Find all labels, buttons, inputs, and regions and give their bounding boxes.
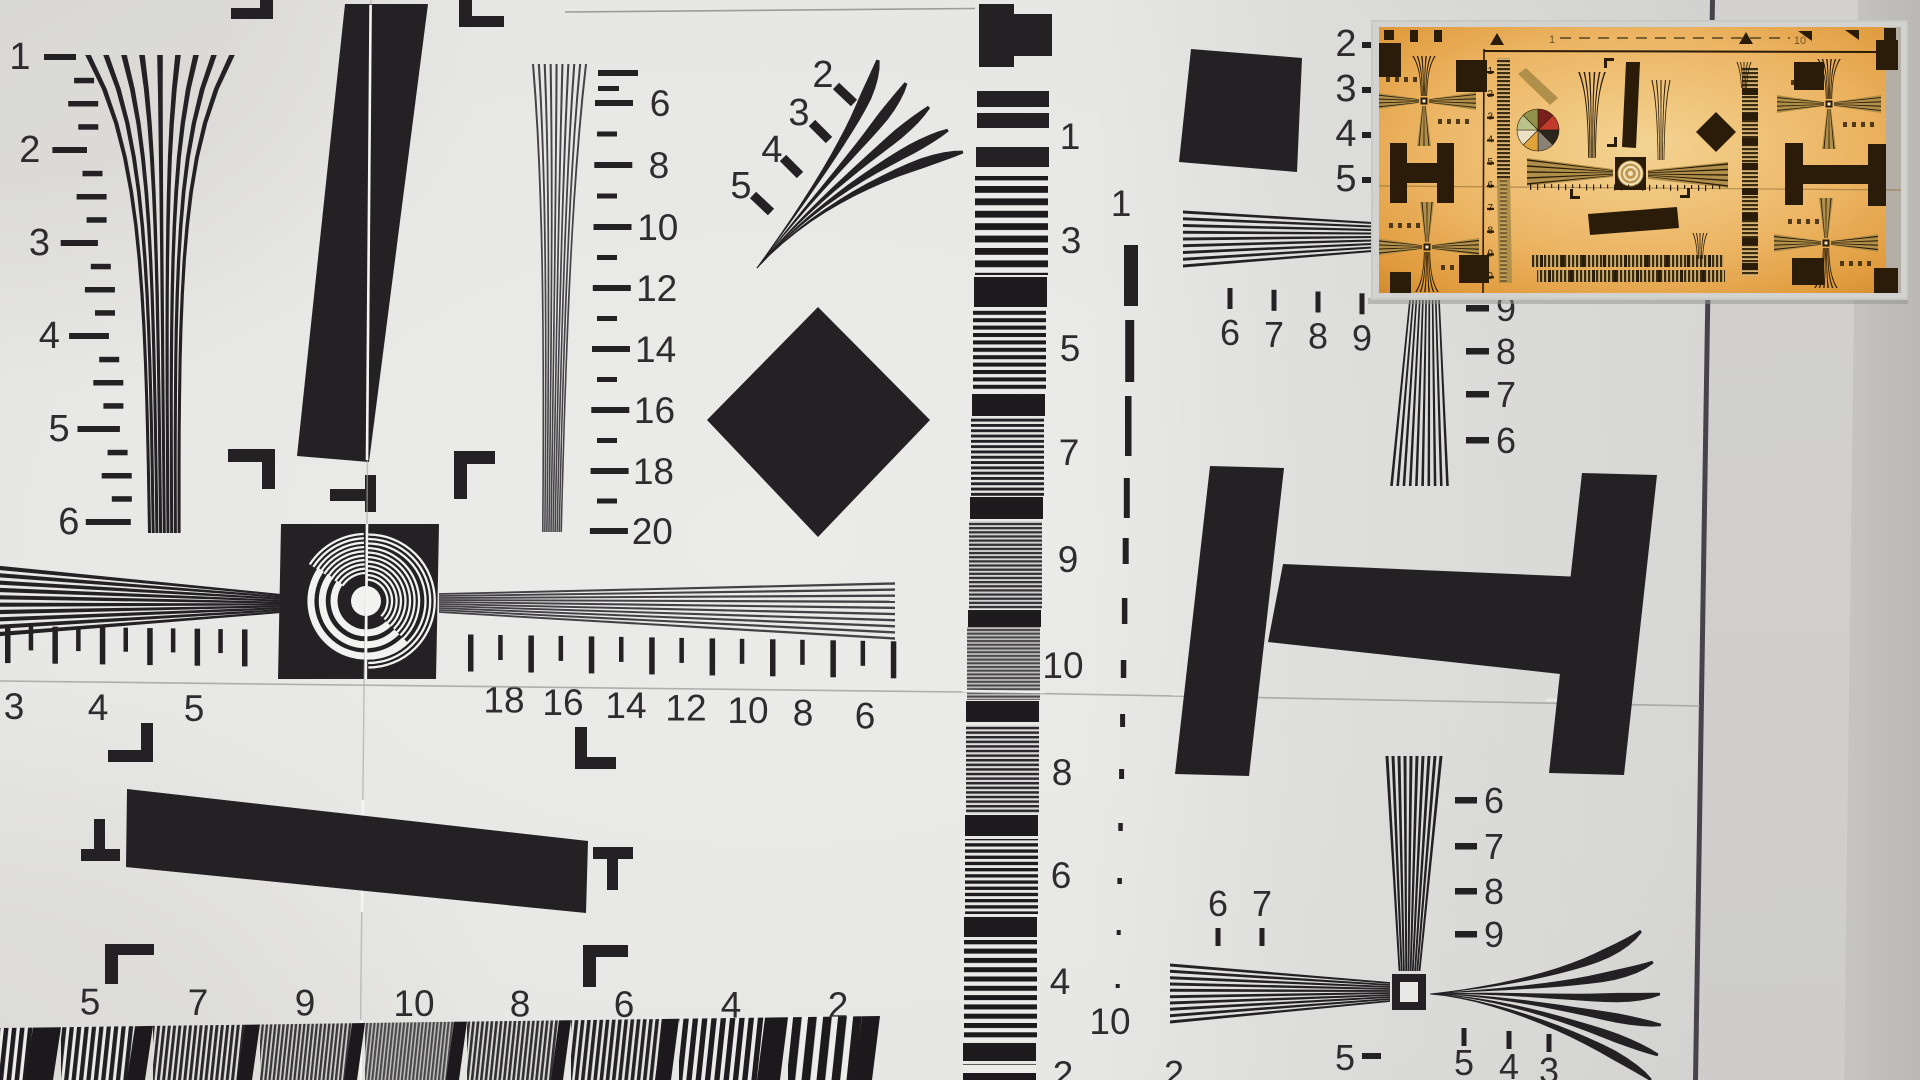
svg-text:5: 5	[1454, 1042, 1474, 1080]
svg-text:3: 3	[1487, 112, 1493, 123]
svg-text:4: 4	[761, 129, 782, 171]
svg-text:7: 7	[1487, 203, 1493, 214]
svg-text:6: 6	[1496, 420, 1516, 461]
svg-text:10: 10	[1042, 645, 1083, 686]
svg-text:16: 16	[634, 390, 675, 431]
svg-text:2: 2	[812, 54, 833, 96]
svg-text:8: 8	[1052, 752, 1073, 793]
svg-text:6: 6	[855, 696, 876, 737]
svg-text:4: 4	[1487, 134, 1493, 145]
svg-text:6: 6	[1051, 855, 1072, 896]
svg-text:18: 18	[633, 451, 674, 492]
svg-text:6: 6	[1220, 312, 1240, 353]
svg-text:1: 1	[1549, 34, 1555, 46]
svg-text:5: 5	[80, 982, 101, 1023]
svg-text:2: 2	[1053, 1054, 1074, 1080]
svg-text:5: 5	[184, 688, 205, 729]
svg-text:3: 3	[788, 92, 809, 134]
svg-text:4: 4	[1499, 1046, 1519, 1080]
svg-text:18: 18	[483, 679, 524, 720]
svg-text:3: 3	[1539, 1050, 1559, 1080]
svg-text:9: 9	[1352, 317, 1372, 358]
svg-text:6: 6	[58, 501, 79, 543]
svg-text:2: 2	[19, 129, 40, 171]
svg-text:4: 4	[88, 687, 109, 728]
svg-text:1: 1	[1487, 66, 1493, 77]
svg-text:4: 4	[1050, 961, 1071, 1002]
svg-text:6: 6	[1208, 883, 1228, 924]
svg-text:2: 2	[1335, 23, 1356, 65]
svg-text:5: 5	[49, 408, 70, 450]
svg-text:6: 6	[650, 83, 671, 124]
svg-text:9: 9	[295, 983, 316, 1024]
svg-text:6: 6	[1484, 780, 1504, 821]
svg-text:3: 3	[4, 686, 25, 727]
svg-text:8: 8	[649, 145, 670, 186]
svg-text:7: 7	[1484, 826, 1504, 867]
svg-text:10: 10	[1794, 35, 1806, 47]
svg-text:20: 20	[632, 511, 673, 552]
svg-text:10: 10	[393, 983, 434, 1024]
svg-text:2: 2	[1487, 89, 1493, 100]
svg-text:10: 10	[727, 690, 768, 731]
svg-text:3: 3	[1335, 68, 1356, 110]
svg-text:5: 5	[730, 165, 751, 207]
svg-text:7: 7	[1264, 314, 1284, 355]
svg-text:3: 3	[29, 222, 50, 264]
svg-text:5: 5	[1487, 157, 1493, 168]
svg-text:10: 10	[637, 207, 678, 248]
svg-text:1: 1	[9, 36, 30, 78]
svg-text:8: 8	[1308, 316, 1328, 357]
svg-text:4: 4	[39, 315, 60, 357]
svg-text:8: 8	[1487, 226, 1493, 237]
svg-text:7: 7	[188, 982, 209, 1023]
svg-text:3: 3	[1061, 220, 1082, 261]
svg-text:10: 10	[1482, 271, 1494, 282]
svg-text:5: 5	[1335, 1037, 1355, 1078]
svg-text:8: 8	[1496, 331, 1516, 372]
svg-text:12: 12	[665, 688, 706, 729]
svg-text:14: 14	[605, 685, 646, 726]
svg-text:8: 8	[1484, 871, 1504, 912]
svg-text:5: 5	[1060, 328, 1081, 369]
svg-text:4: 4	[1335, 113, 1356, 155]
svg-text:12: 12	[636, 268, 677, 309]
svg-text:5: 5	[1335, 158, 1356, 200]
svg-text:7: 7	[1252, 883, 1272, 924]
svg-text:6: 6	[614, 984, 635, 1025]
svg-text:9: 9	[1484, 914, 1504, 955]
svg-text:7: 7	[1059, 432, 1080, 473]
svg-text:9: 9	[1487, 248, 1493, 259]
svg-text:14: 14	[635, 329, 676, 370]
svg-text:8: 8	[510, 984, 531, 1025]
svg-text:7: 7	[1496, 374, 1516, 415]
svg-text:10: 10	[1089, 1001, 1130, 1042]
svg-text:8: 8	[793, 693, 814, 734]
svg-text:1: 1	[1111, 183, 1132, 224]
svg-text:6: 6	[1487, 180, 1493, 191]
svg-text:9: 9	[1058, 539, 1079, 580]
svg-text:1: 1	[1060, 116, 1081, 157]
svg-text:2: 2	[1164, 1053, 1184, 1080]
